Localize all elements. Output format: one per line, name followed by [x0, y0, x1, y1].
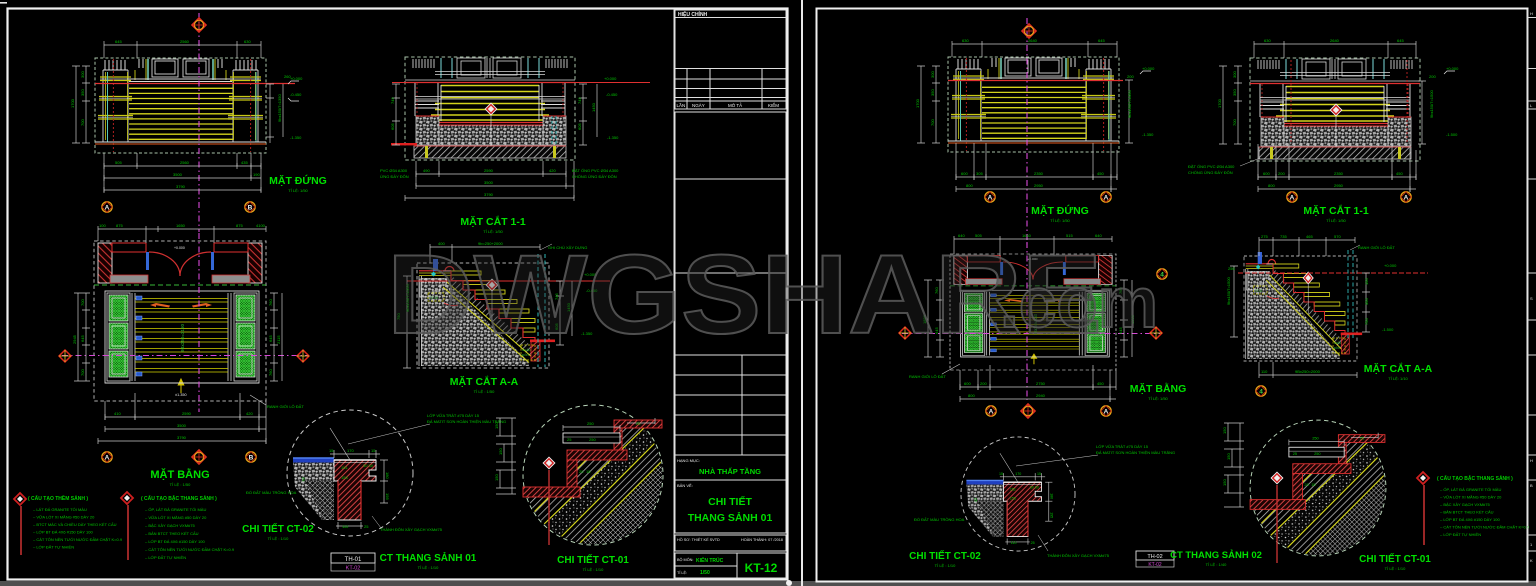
svg-text:150: 150: [1226, 453, 1231, 460]
svg-text:150: 150: [1364, 278, 1369, 285]
svg-text:260: 260: [284, 74, 291, 79]
svg-text:700: 700: [80, 119, 85, 126]
svg-text:MẶT CẮT 1-1: MẶT CẮT 1-1: [460, 215, 525, 228]
svg-text:150: 150: [1222, 427, 1227, 434]
svg-text:– CÁT TÔN NỀN TƯỚI NƯỚC ĐẦM CH: – CÁT TÔN NỀN TƯỚI NƯỚC ĐẦM CHẶT K=0.9: [33, 537, 123, 542]
svg-text:465: 465: [1306, 234, 1313, 239]
svg-text:ĐẶT ỐNG PVC Ø34 A300: ĐẶT ỐNG PVC Ø34 A300: [1188, 164, 1235, 169]
svg-text:2560: 2560: [180, 160, 190, 165]
svg-text:200: 200: [980, 381, 987, 386]
svg-text:645: 645: [1397, 38, 1404, 43]
svg-text:300: 300: [80, 71, 85, 78]
svg-text:TỈ LỆ : 1/50: TỈ LỆ : 1/50: [474, 389, 495, 394]
svg-text:3500: 3500: [484, 180, 494, 185]
svg-text:150: 150: [498, 448, 503, 455]
svg-text:490: 490: [423, 168, 430, 173]
svg-text:3500: 3500: [173, 172, 183, 177]
svg-text:745: 745: [390, 97, 395, 104]
svg-text:2750: 2750: [1036, 381, 1046, 386]
svg-text:CHI TIẾT CT-02: CHI TIẾT CT-02: [242, 522, 314, 535]
svg-text:LỚP VỮA TRÁT #75 DÀY 15: LỚP VỮA TRÁT #75 DÀY 15: [427, 413, 480, 418]
svg-text:MẶT CẮT 1-1: MẶT CẮT 1-1: [1303, 204, 1368, 217]
svg-text:190: 190: [253, 172, 260, 177]
svg-text:9bx150/7=1350: 9bx150/7=1350: [1127, 90, 1132, 118]
svg-text:THÀNH ĐÔN XÂY GẠCH VXM#75: THÀNH ĐÔN XÂY GẠCH VXM#75: [380, 527, 443, 532]
svg-text:NGÀY: NGÀY: [692, 102, 705, 108]
svg-text:305: 305: [976, 171, 983, 176]
svg-text:645: 645: [1098, 38, 1105, 43]
svg-text:350: 350: [80, 89, 85, 96]
svg-text:+0.000: +0.000: [1446, 66, 1459, 71]
svg-text:– LỚP BT ĐÁ 4X6 #150 DÀY 100: – LỚP BT ĐÁ 4X6 #150 DÀY 100: [145, 539, 205, 544]
svg-text:9bx150/7=1350: 9bx150/7=1350: [277, 94, 282, 122]
svg-text:HIỆU CHỈNH: HIỆU CHỈNH: [678, 10, 708, 18]
svg-text:9bx150/7=1500: 9bx150/7=1500: [1226, 277, 1231, 305]
svg-text:3790: 3790: [176, 184, 186, 189]
svg-text:645: 645: [268, 335, 273, 342]
svg-text:750: 750: [1364, 318, 1369, 325]
svg-text:+0.000: +0.000: [1384, 263, 1397, 268]
svg-text:600: 600: [1263, 171, 1270, 176]
svg-text:9bx150/7=1500: 9bx150/7=1500: [1429, 90, 1434, 118]
svg-text:630: 630: [244, 39, 251, 44]
svg-text:605: 605: [577, 123, 582, 130]
svg-text:TỈ LỆ: 1/50: TỈ LỆ: 1/50: [1326, 218, 1346, 223]
svg-text:HOÀN THÀNH: 07 /2018: HOÀN THÀNH: 07 /2018: [741, 538, 783, 542]
svg-text:– LỚP ĐẤT TỰ NHIÊN: – LỚP ĐẤT TỰ NHIÊN: [145, 555, 186, 560]
svg-text:– BẢN BTCT THEO KẾT CẤU: – BẢN BTCT THEO KẾT CẤU: [1440, 510, 1494, 515]
svg-text:-0.450: -0.450: [606, 92, 618, 97]
svg-text:2350: 2350: [1334, 171, 1344, 176]
svg-text:TỈ LỆ : 1/10: TỈ LỆ : 1/10: [583, 567, 604, 572]
svg-text:9Bx250=2000: 9Bx250=2000: [1295, 369, 1321, 374]
svg-text:TỈ LỆ: 1/10: TỈ LỆ: 1/10: [1388, 376, 1408, 381]
svg-text:1650: 1650: [176, 223, 186, 228]
svg-text:410: 410: [114, 411, 121, 416]
svg-text:RANH GIỚI LÔ ĐẤT: RANH GIỚI LÔ ĐẤT: [1358, 245, 1395, 250]
svg-text:MẶT ĐỨNG: MẶT ĐỨNG: [269, 174, 327, 187]
svg-text:TỈ LỆ : 1/10: TỈ LỆ : 1/10: [418, 565, 439, 570]
svg-text:735: 735: [1280, 234, 1287, 239]
svg-text:BẢN VẼ:: BẢN VẼ:: [677, 483, 693, 488]
svg-text:150: 150: [494, 422, 499, 429]
svg-text:350: 350: [930, 89, 935, 96]
svg-text:MẶT BẰNG: MẶT BẰNG: [150, 468, 209, 481]
svg-text:350: 350: [1364, 298, 1369, 305]
svg-text:275: 275: [1261, 234, 1268, 239]
svg-text:450: 450: [1097, 171, 1104, 176]
svg-text:KT-12: KT-12: [745, 561, 778, 575]
svg-text:2560: 2560: [180, 39, 190, 44]
svg-text:– LỚP ĐẤT TỰ NHIÊN: – LỚP ĐẤT TỰ NHIÊN: [1440, 532, 1481, 537]
svg-text:800: 800: [966, 183, 973, 188]
svg-text:450: 450: [1396, 171, 1403, 176]
svg-text:300: 300: [930, 71, 935, 78]
svg-text:TỈ LỆ: 1/50: TỈ LỆ: 1/50: [1050, 218, 1070, 223]
svg-text:ĐÁ MATIT SƠN HOÀN THIỆN MÀU TR: ĐÁ MATIT SƠN HOÀN THIỆN MÀU TRẮNG: [1096, 450, 1175, 455]
svg-text:.com: .com: [1000, 264, 1158, 343]
svg-text:TỈ LỆ : 1/10: TỈ LỆ : 1/10: [935, 563, 956, 568]
svg-text:2950: 2950: [1334, 183, 1344, 188]
svg-text:H: H: [1530, 11, 1533, 16]
svg-text:350: 350: [1232, 89, 1237, 96]
svg-text:– BẢN BTCT THEO KẾT CẤU: – BẢN BTCT THEO KẾT CẤU: [145, 531, 199, 536]
svg-text:3500: 3500: [177, 423, 187, 428]
svg-text:745: 745: [577, 97, 582, 104]
svg-text:435: 435: [241, 160, 248, 165]
svg-text:200: 200: [1127, 74, 1134, 79]
svg-text:800: 800: [1268, 183, 1275, 188]
svg-text:TH-02: TH-02: [1147, 554, 1162, 560]
svg-text:2115: 2115: [276, 335, 281, 344]
svg-text:TỈ LỆ:: TỈ LỆ:: [677, 570, 687, 575]
svg-text:-1.350: -1.350: [290, 135, 302, 140]
svg-text:HẠNG MỤC:: HẠNG MỤC:: [677, 458, 700, 463]
svg-text:RANH GIỚI LÔ ĐẤT: RANH GIỚI LÔ ĐẤT: [267, 404, 304, 409]
svg-text:645: 645: [115, 39, 122, 44]
svg-text:S: S: [1530, 296, 1533, 301]
svg-text:KIỂM: KIỂM: [768, 102, 779, 108]
svg-text:605: 605: [390, 123, 395, 130]
svg-text:H: H: [1530, 458, 1533, 463]
svg-text:TỈ LỆ: 1/50: TỈ LỆ: 1/50: [1148, 396, 1168, 401]
svg-text:-0.450: -0.450: [290, 92, 302, 97]
svg-text:– ỐP, LÁT ĐÁ GRANITE TỐI MÀU: – ỐP, LÁT ĐÁ GRANITE TỐI MÀU: [145, 507, 206, 512]
svg-text:KIẾN TRÚC: KIẾN TRÚC: [696, 557, 724, 564]
svg-text:875: 875: [116, 223, 123, 228]
svg-text:THANG SẢNH 01: THANG SẢNH 01: [688, 511, 773, 524]
svg-text:700: 700: [930, 119, 935, 126]
svg-text:1700: 1700: [70, 98, 75, 108]
svg-text:+0.000: +0.000: [604, 76, 617, 81]
svg-text:630: 630: [962, 38, 969, 43]
svg-text:– BẬC XÂY GẠCH VXM#75: – BẬC XÂY GẠCH VXM#75: [145, 523, 196, 528]
svg-text:2945: 2945: [72, 334, 77, 344]
svg-text:KT-02: KT-02: [346, 566, 361, 572]
svg-text:MẶT CẮT A-A: MẶT CẮT A-A: [1364, 362, 1433, 375]
svg-text:ĐẶT ỐNG PVC Ø34 A300: ĐẶT ỐNG PVC Ø34 A300: [572, 168, 619, 173]
svg-text:MÔ TẢ: MÔ TẢ: [728, 102, 742, 108]
svg-text:3790: 3790: [484, 192, 494, 197]
svg-text:1450: 1450: [591, 102, 596, 112]
svg-text:-1.500: -1.500: [1446, 132, 1458, 137]
svg-text:-1.350: -1.350: [607, 135, 619, 140]
svg-text:600: 600: [961, 171, 968, 176]
svg-text:2350: 2350: [1034, 171, 1044, 176]
svg-text:– LỚP ĐẤT TỰ NHIÊN: – LỚP ĐẤT TỰ NHIÊN: [33, 545, 74, 550]
svg-text:450: 450: [1097, 381, 1104, 386]
svg-text:3790: 3790: [177, 435, 187, 440]
svg-text:570: 570: [1334, 234, 1341, 239]
svg-text:– LÁT ĐÁ GRANITE TỐI MÀU: – LÁT ĐÁ GRANITE TỐI MÀU: [33, 507, 87, 512]
svg-text:NHÀ THẤP TẦNG: NHÀ THẤP TẦNG: [699, 466, 761, 476]
svg-text:700: 700: [80, 299, 85, 306]
svg-text:1700: 1700: [915, 98, 920, 108]
svg-text:760: 760: [268, 299, 273, 306]
svg-text:250: 250: [1228, 266, 1235, 271]
svg-text:KT-02: KT-02: [1148, 562, 1162, 568]
svg-text:2590: 2590: [182, 411, 192, 416]
svg-text:– ỐP, LÁT ĐÁ GRANITE TỐI MÀU: – ỐP, LÁT ĐÁ GRANITE TỐI MÀU: [1440, 487, 1501, 492]
svg-text:875: 875: [236, 223, 243, 228]
svg-text:ỪNG ĐẨY ĐÔN: ỪNG ĐẨY ĐÔN: [380, 174, 409, 179]
svg-text:800: 800: [968, 393, 975, 398]
svg-text:( CẤU TẠO THỀM SẢNH ): ( CẤU TẠO THỀM SẢNH ): [28, 495, 88, 502]
svg-text:CHỐNG ỪNG ĐẨY ĐÔN: CHỐNG ỪNG ĐẨY ĐÔN: [1188, 170, 1233, 175]
svg-text:300: 300: [1232, 71, 1237, 78]
svg-text:CT THANG SẢNH 02: CT THANG SẢNH 02: [1170, 549, 1262, 561]
svg-text:CHI TIẾT CT-02: CHI TIẾT CT-02: [909, 549, 981, 562]
svg-text:700: 700: [80, 369, 85, 376]
svg-text:600: 600: [964, 381, 971, 386]
svg-text:– CÁT TÔN NỀN TƯỚI NƯỚC ĐẦM CH: – CÁT TÔN NỀN TƯỚI NƯỚC ĐẦM CHẶT K=0.9: [1440, 525, 1530, 530]
svg-text:200: 200: [1278, 171, 1285, 176]
svg-text:2590: 2590: [484, 168, 494, 173]
svg-text:1700: 1700: [1217, 98, 1222, 108]
svg-text:THÀNH ĐÔN XÂY GẠCH VXM#75: THÀNH ĐÔN XÂY GẠCH VXM#75: [1047, 553, 1110, 558]
svg-text:– LỚP BT ĐÁ 4X6 #150 DÀY 100: – LỚP BT ĐÁ 4X6 #150 DÀY 100: [33, 530, 93, 535]
svg-text:TH-01: TH-01: [345, 557, 362, 563]
svg-text:– BTCT MÁC VÀ CHIỀU DÀY THEO K: – BTCT MÁC VÀ CHIỀU DÀY THEO KẾT CẤU: [33, 522, 117, 527]
svg-text:ĐỔ ĐẤT MÀU TRỒNG HOA: ĐỔ ĐẤT MÀU TRỒNG HOA: [914, 517, 965, 522]
svg-text:CT THANG SẢNH 01: CT THANG SẢNH 01: [380, 551, 477, 564]
svg-text:LẦN: LẦN: [677, 102, 686, 108]
svg-text:150: 150: [494, 474, 499, 481]
svg-text:700: 700: [1232, 119, 1237, 126]
svg-text:-1.500: -1.500: [1382, 327, 1394, 332]
svg-text:150: 150: [1222, 479, 1227, 486]
svg-text:CHI TIẾT CT-01: CHI TIẾT CT-01: [1359, 552, 1431, 565]
svg-text:+0.000: +0.000: [290, 76, 303, 81]
svg-text:420: 420: [549, 168, 556, 173]
svg-text:MẶT BẰNG: MẶT BẰNG: [1130, 382, 1187, 395]
svg-text:– CÁT TÔN NỀN TƯỚI NƯỚC ĐẦM CH: – CÁT TÔN NỀN TƯỚI NƯỚC ĐẦM CHẶT K=0.9: [145, 547, 235, 552]
svg-text:PVC Ø34 A300: PVC Ø34 A300: [380, 168, 408, 173]
svg-text:– VỮA LÓT XI MĂNG #50 DÀY 20: – VỮA LÓT XI MĂNG #50 DÀY 20: [1440, 495, 1502, 500]
svg-text:100: 100: [99, 223, 106, 228]
svg-text:RANH GIỚI LÔ ĐẤT: RANH GIỚI LÔ ĐẤT: [909, 374, 946, 379]
svg-text:+0.000: +0.000: [1142, 66, 1155, 71]
svg-text:( CẤU TẠO BẬC THANG SẢNH ): ( CẤU TẠO BẬC THANG SẢNH ): [141, 495, 217, 502]
svg-text:420: 420: [246, 411, 253, 416]
svg-text:MẶT CẮT A-A: MẶT CẮT A-A: [450, 375, 519, 388]
svg-text:4100: 4100: [256, 223, 266, 228]
svg-text:– LỚP BT ĐÁ 4X6 #150 DÀY 100: – LỚP BT ĐÁ 4X6 #150 DÀY 100: [1440, 517, 1500, 522]
svg-text:±1.350: ±1.350: [175, 393, 187, 397]
svg-text:CHI TIẾT: CHI TIẾT: [708, 495, 752, 508]
svg-text:TỈ LỆ: 1/50: TỈ LỆ: 1/50: [288, 188, 308, 193]
svg-text:760: 760: [268, 369, 273, 376]
svg-text:– VỮA LÓT XI MĂNG #50 DÀY 20: – VỮA LÓT XI MĂNG #50 DÀY 20: [33, 515, 95, 520]
svg-text:200: 200: [1429, 74, 1436, 79]
svg-text:110: 110: [1261, 369, 1268, 374]
svg-text:-1.350: -1.350: [1142, 132, 1154, 137]
svg-text:CHỐNG ỪNG ĐẨY ĐÔN: CHỐNG ỪNG ĐẨY ĐÔN: [572, 174, 617, 179]
svg-text:TỈ LỆ : 1/10: TỈ LỆ : 1/10: [268, 536, 289, 541]
svg-text:HỒ SƠ: THIẾT KẾ SVTD: HỒ SƠ: THIẾT KẾ SVTD: [677, 537, 720, 542]
svg-text:BỘ MÔN:: BỘ MÔN:: [677, 557, 693, 562]
svg-text:TỈ LỆ : 1/50: TỈ LỆ : 1/50: [170, 482, 191, 487]
svg-text:CHI TIẾT CT-01: CHI TIẾT CT-01: [557, 553, 629, 566]
svg-text:– BẬC XÂY GẠCH VXM#75: – BẬC XÂY GẠCH VXM#75: [1440, 502, 1491, 507]
svg-text:DWGSHARE: DWGSHARE: [387, 232, 1102, 357]
svg-text:K: K: [1530, 558, 1533, 563]
svg-text:ĐỔ ĐẤT MÀU TRỒNG HOA: ĐỔ ĐẤT MÀU TRỒNG HOA: [246, 490, 297, 495]
svg-text:B: B: [1530, 483, 1533, 488]
svg-text:– VỮA LÓT XI MĂNG #50 DÀY 20: – VỮA LÓT XI MĂNG #50 DÀY 20: [145, 515, 207, 520]
svg-text:630: 630: [1264, 38, 1271, 43]
svg-text:1/50: 1/50: [700, 570, 710, 576]
svg-text:505: 505: [115, 160, 122, 165]
svg-text:TỈ LỆ : 1/10: TỈ LỆ : 1/10: [1385, 566, 1406, 571]
svg-text:645: 645: [80, 335, 85, 342]
svg-text:2640: 2640: [1330, 38, 1340, 43]
svg-text:TỈ LỆ : 1/40: TỈ LỆ : 1/40: [1206, 562, 1227, 567]
svg-text:MẶT ĐỨNG: MẶT ĐỨNG: [1031, 204, 1089, 217]
svg-text:2940: 2940: [1036, 393, 1046, 398]
svg-text:LỚP VỮA TRÁT #75 DÀY 15: LỚP VỮA TRÁT #75 DÀY 15: [1096, 444, 1149, 449]
svg-text:2640: 2640: [1028, 38, 1038, 43]
svg-text:2950: 2950: [1034, 183, 1044, 188]
svg-text:( CẤU TẠO BẬC THANG SẢNH ): ( CẤU TẠO BẬC THANG SẢNH ): [1437, 475, 1513, 482]
